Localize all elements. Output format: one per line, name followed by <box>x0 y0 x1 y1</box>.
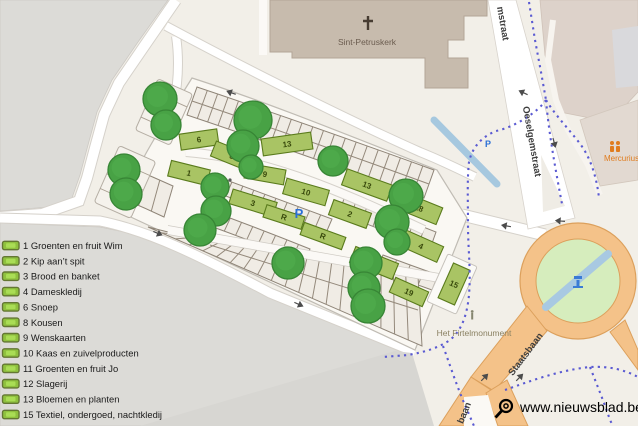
svg-text:10 Kaas en zuivelproducten: 10 Kaas en zuivelproducten <box>23 348 139 359</box>
svg-text:4 Dameskledij: 4 Dameskledij <box>23 286 82 297</box>
svg-text:P: P <box>295 206 304 221</box>
svg-text:15 Textiel, ondergoed, nachtkl: 15 Textiel, ondergoed, nachtkledij <box>23 409 162 420</box>
svg-text:13 Bloemen en planten: 13 Bloemen en planten <box>23 394 119 405</box>
svg-text:Sint-Petruskerk: Sint-Petruskerk <box>338 37 397 47</box>
svg-text:P: P <box>485 139 491 149</box>
svg-text:13: 13 <box>282 139 293 149</box>
svg-text:9 Wenskaarten: 9 Wenskaarten <box>23 332 86 343</box>
svg-text:2 Kip aan’t spit: 2 Kip aan’t spit <box>23 255 85 266</box>
svg-text:1 Groenten en fruit Wim: 1 Groenten en fruit Wim <box>23 240 123 251</box>
svg-text:11 Groenten en fruit Jo: 11 Groenten en fruit Jo <box>23 363 118 374</box>
svg-text:6 Snoep: 6 Snoep <box>23 301 58 312</box>
svg-text:Het Firtelmonument: Het Firtelmonument <box>437 328 512 338</box>
svg-text:12 Slagerij: 12 Slagerij <box>23 378 67 389</box>
svg-text:Mercurius: Mercurius <box>604 154 638 163</box>
svg-text:www.nieuwsblad.be: www.nieuwsblad.be <box>519 399 638 415</box>
svg-text:8 Kousen: 8 Kousen <box>23 317 63 328</box>
svg-text:3 Brood en banket: 3 Brood en banket <box>23 271 100 282</box>
